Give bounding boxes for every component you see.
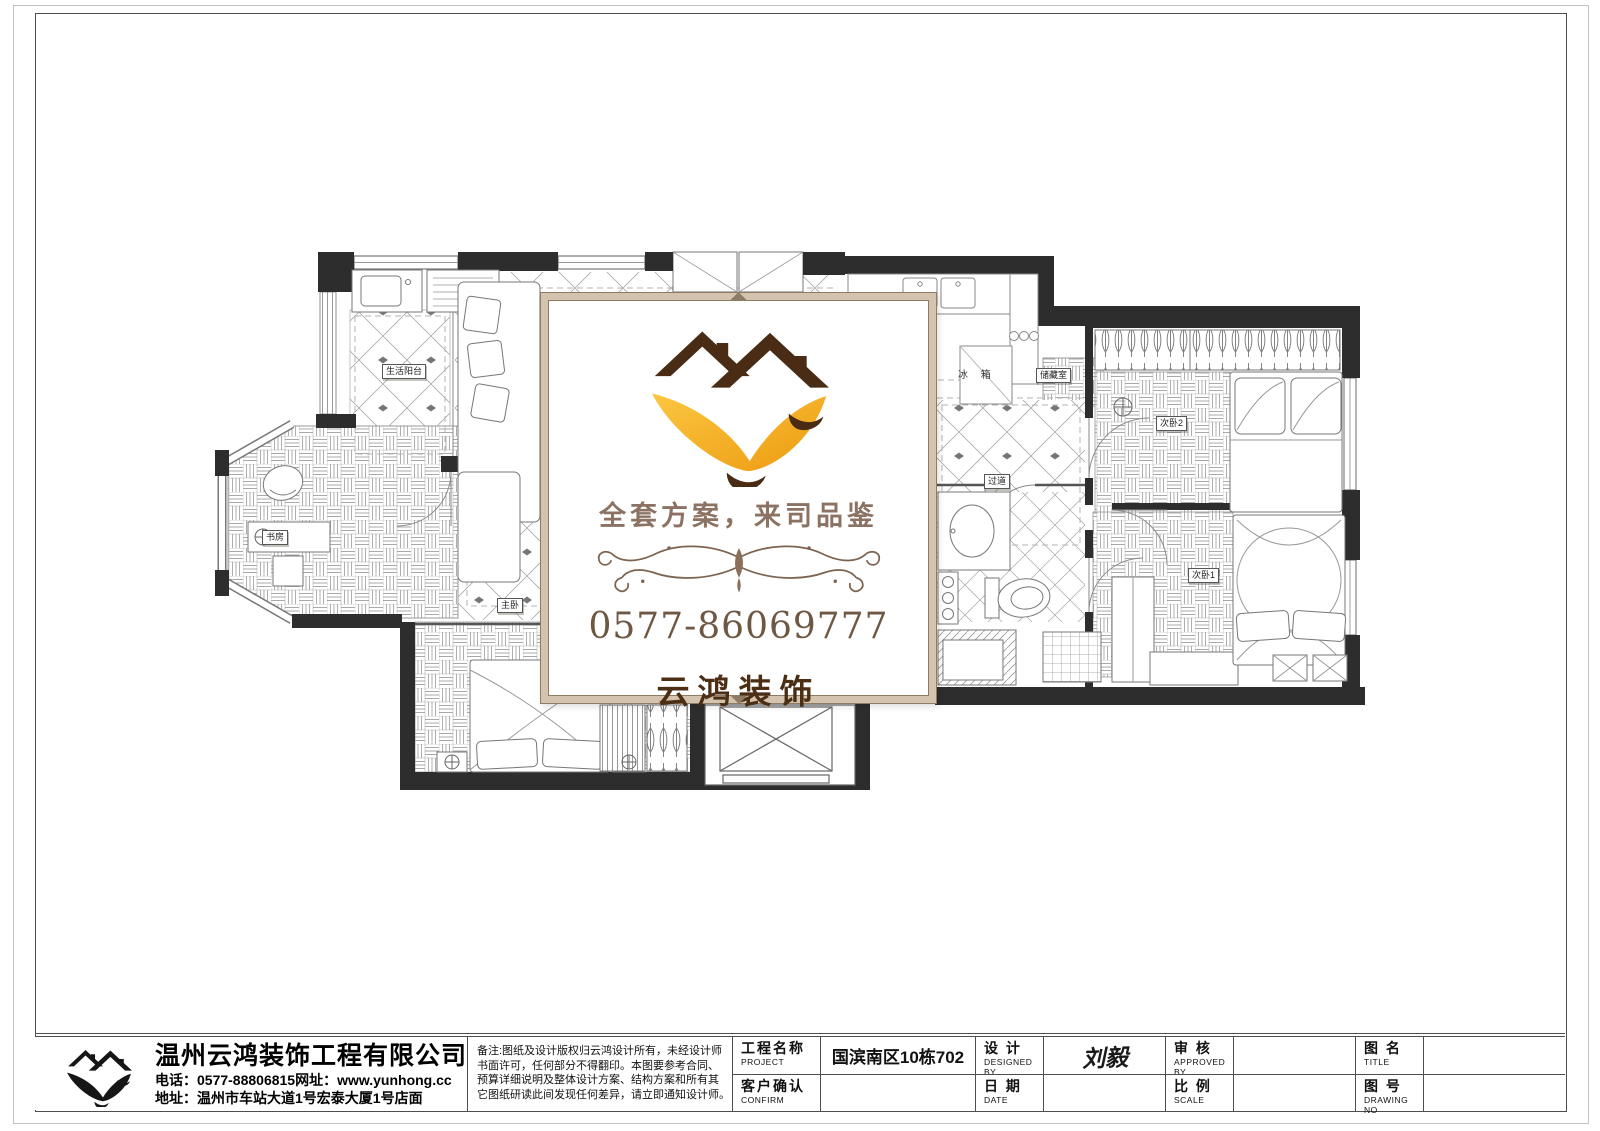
room-label-study: 书房 xyxy=(262,530,288,545)
room-label-bedroom1: 次卧1 xyxy=(1188,568,1219,583)
project-label: 工程名称 PROJECT xyxy=(733,1037,820,1074)
approve-scale-values xyxy=(1233,1037,1355,1111)
date-label: 日 期 DATE xyxy=(976,1074,1043,1111)
design-date-labels: 设 计 DESIGNED BY 日 期 DATE xyxy=(975,1037,1043,1111)
watermark-phone: 0577-86069777 xyxy=(541,606,936,647)
design-label-cn: 设 计 xyxy=(984,1040,1043,1057)
scale-value xyxy=(1234,1074,1355,1111)
date-label-en: DATE xyxy=(984,1095,1043,1105)
scale-label-cn: 比 例 xyxy=(1174,1078,1233,1095)
project-label-en: PROJECT xyxy=(741,1057,820,1067)
drawingno-label-cn: 图 号 xyxy=(1364,1078,1423,1095)
confirm-label: 客户确认 CONFIRM xyxy=(733,1074,820,1111)
approve-label-cn: 审 核 xyxy=(1174,1040,1233,1057)
signature-text: 刘毅 xyxy=(1081,1038,1128,1074)
room-label-corridor: 过道 xyxy=(984,474,1010,489)
project-confirm-values: 国滨南区10栋702 xyxy=(820,1037,975,1111)
date-value xyxy=(1044,1074,1165,1111)
room-label-master: 主卧 xyxy=(497,598,523,613)
title-drawingno-values xyxy=(1423,1037,1565,1111)
company-cell: 温州云鸿装饰工程有限公司 电话：0577-88806815网址：www.yunh… xyxy=(35,1037,467,1111)
approve-label: 审 核 APPROVED BY xyxy=(1166,1037,1233,1074)
project-confirm-labels: 工程名称 PROJECT 客户确认 CONFIRM xyxy=(732,1037,820,1111)
company-name: 温州云鸿装饰工程有限公司 xyxy=(155,1041,467,1071)
frame-ornament-top xyxy=(731,292,747,300)
approve-scale-labels: 审 核 APPROVED BY 比 例 SCALE xyxy=(1165,1037,1233,1111)
drawingno-label: 图 号 DRAWING NO xyxy=(1356,1074,1423,1111)
drawingno-value xyxy=(1424,1074,1565,1111)
company-address: 地址：温州市车站大道1号宏泰大厦1号店面 xyxy=(155,1089,467,1107)
title-drawingno-labels: 图 名 TITLE 图 号 DRAWING NO xyxy=(1355,1037,1423,1111)
date-label-cn: 日 期 xyxy=(984,1078,1043,1095)
brand-logo-icon xyxy=(614,307,864,487)
confirm-label-cn: 客户确认 xyxy=(741,1078,820,1095)
designer-signature: 刘毅 xyxy=(1044,1037,1165,1074)
design-date-values: 刘毅 xyxy=(1043,1037,1165,1111)
notes-line: 它图纸研读此间发现任何差异，请立即通知设计师。 xyxy=(477,1088,732,1103)
notes-line: 备注:图纸及设计版权归云鸿设计所有，未经设计师 xyxy=(477,1044,732,1059)
title-value xyxy=(1424,1037,1565,1074)
project-label-cn: 工程名称 xyxy=(741,1040,820,1057)
watermark-brand: 云鸿装饰 xyxy=(541,665,936,713)
project-value: 国滨南区10栋702 xyxy=(821,1037,975,1074)
notes-line: 书面许可，任何部分不得翻印。本图要参考合同、 xyxy=(477,1059,732,1074)
watermark-card: 全套方案，来司品鉴 0577-86069777 云鸿装饰 xyxy=(540,292,937,704)
title-label-en: TITLE xyxy=(1364,1057,1423,1067)
company-phone: 电话：0577-88806815网址：www.yunhong.cc xyxy=(155,1071,467,1089)
notes-line: 预算详细说明及整体设计方案、结构方案和所有其 xyxy=(477,1073,732,1088)
room-label-balcony: 生活阳台 xyxy=(382,364,426,379)
approve-value xyxy=(1234,1037,1355,1074)
room-label-storage: 储藏室 xyxy=(1036,368,1071,383)
drawing-sheet: 生活阳台 书房 主卧 冰 箱 储藏室 过道 次卧2 次卧1 全套方案，来司品鉴 xyxy=(0,0,1600,1131)
company-info: 温州云鸿装饰工程有限公司 电话：0577-88806815网址：www.yunh… xyxy=(155,1041,467,1107)
room-label-bedroom2: 次卧2 xyxy=(1156,416,1187,431)
title-block: 温州云鸿装饰工程有限公司 电话：0577-88806815网址：www.yunh… xyxy=(35,1036,1565,1110)
title-label: 图 名 TITLE xyxy=(1356,1037,1423,1074)
flourish-ornament-icon xyxy=(574,541,904,597)
notes-cell: 备注:图纸及设计版权归云鸿设计所有，未经设计师 书面许可，任何部分不得翻印。本图… xyxy=(467,1037,732,1111)
confirm-value xyxy=(821,1074,975,1111)
title-label-cn: 图 名 xyxy=(1364,1040,1423,1057)
drawingno-label-en: DRAWING NO xyxy=(1364,1095,1423,1115)
scale-label: 比 例 SCALE xyxy=(1166,1074,1233,1111)
design-label: 设 计 DESIGNED BY xyxy=(976,1037,1043,1074)
room-label-fridge: 冰 箱 xyxy=(958,366,996,381)
confirm-label-en: CONFIRM xyxy=(741,1095,820,1105)
scale-label-en: SCALE xyxy=(1174,1095,1233,1105)
watermark-tagline: 全套方案，来司品鉴 xyxy=(541,494,936,533)
company-logo-icon xyxy=(53,1041,145,1107)
